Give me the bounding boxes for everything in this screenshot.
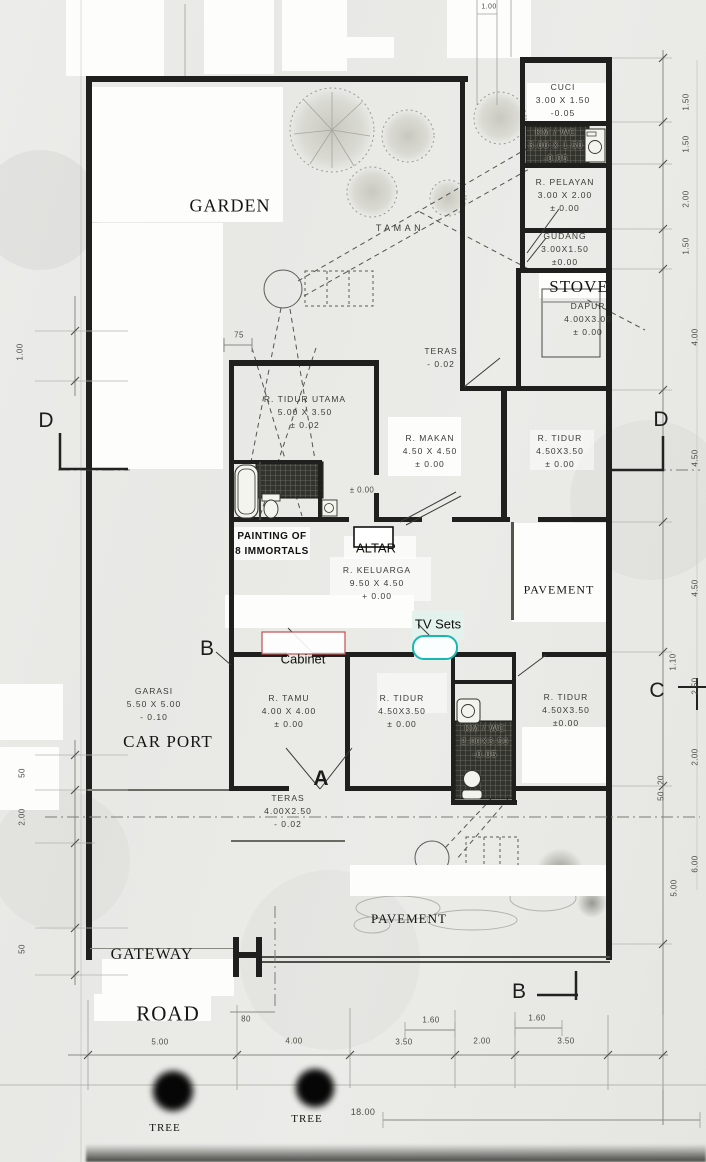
dim-1-50-r2: 1.50	[682, 135, 691, 152]
dim-1-60-b: 1.60	[528, 1014, 545, 1023]
room-label-teras-top: TERAS - 0.02	[424, 345, 457, 371]
tree-icon	[293, 1066, 337, 1110]
room-label-cuci: CUCI 3.00 X 1.50 -0.05	[536, 81, 590, 121]
washing-machine-icon	[585, 129, 605, 162]
tree-icon	[150, 1068, 196, 1114]
label-car-port: CAR PORT	[123, 732, 213, 752]
label-painting: PAINTING OF 8 IMMORTALS	[235, 529, 309, 559]
toilet-icon	[464, 771, 481, 788]
room-label-tidur-utama: R. TIDUR UTAMA 5.00 X 3.50 ± 0.02	[264, 393, 346, 433]
room-label-tidur-se: R. TIDUR 4.50X3.50 ±0.00	[542, 691, 590, 731]
room-label-makan: R. MAKAN 4.50 X 4.50 ± 0.00	[403, 432, 457, 472]
room-label-garasi: GARASI 5.50 X 5.00 - 0.10	[127, 685, 181, 725]
label-tv-sets: TV Sets	[415, 617, 461, 632]
label-cabinet: Cabinet	[281, 652, 326, 667]
dim-1-00-l: 1.00	[16, 343, 25, 360]
room-label-teras-bottom: TERAS 4.00X2.50 - 0.02	[264, 792, 312, 832]
dim-3-50-b: 3.50	[557, 1037, 574, 1046]
room-label-tidur-mid: R. TIDUR 4.50X3.50 ± 0.00	[378, 692, 426, 732]
dim-1-60-a: 1.60	[422, 1016, 439, 1025]
label-garden: GARDEN	[190, 196, 271, 217]
dim-4-50-r1: 4.50	[691, 449, 700, 466]
marker-d-right: D	[653, 408, 668, 432]
garden-sketch-top	[264, 88, 526, 308]
marker-d-left: D	[38, 409, 53, 433]
dim-6-00-r: 6.00	[691, 855, 700, 872]
scan-smudge	[86, 1144, 706, 1162]
dim-2-00-r1: 2.00	[682, 190, 691, 207]
marker-b-bottom: B	[512, 980, 526, 1004]
label-pavement-bottom: PAVEMENT	[371, 911, 447, 927]
dim-4-00-bottom: 4.00	[285, 1037, 302, 1046]
room-label-dapur: DAPUR 4.00X3.00 ± 0.00	[564, 300, 612, 340]
dim-50-l1: 50	[18, 768, 27, 778]
dim-1-50-r1: 1.50	[682, 93, 691, 110]
dim-75: 75	[234, 331, 244, 340]
dim-2-50-r: 2.50	[691, 677, 700, 694]
room-label-tamu: R. TAMU 4.00 X 4.00 ± 0.00	[262, 692, 316, 732]
label-gateway: GATEWAY	[111, 946, 194, 964]
dim-5-00-r: 5.00	[670, 879, 679, 896]
dim-2-00-bottom: 2.00	[473, 1037, 490, 1046]
label-road: ROAD	[136, 1002, 200, 1027]
label-stove: STOVE	[549, 277, 608, 297]
dim-2-00-r2: 2.00	[691, 748, 700, 765]
room-label-gudang: GUDANG 3.00X1.50 ±0.00	[541, 230, 589, 270]
dim-20-r: 20	[657, 775, 666, 785]
marker-b-left: B	[200, 637, 214, 661]
marker-c-right: C	[649, 679, 664, 703]
dim-4-00-r: 4.00	[691, 328, 700, 345]
dim-2-00-l: 2.00	[18, 808, 27, 825]
dim-4-50-r2: 4.50	[691, 579, 700, 596]
dim-1-50-r3: 1.50	[682, 237, 691, 254]
scan-crease	[80, 0, 82, 1162]
marker-a: A	[313, 767, 328, 791]
room-label-kmwc-top: KM / WC 3.00 X 1.50 -0.05	[529, 126, 583, 166]
dim-50-l2: 50	[18, 944, 27, 954]
dim-1-00-top: 1.00	[481, 4, 496, 11]
dim-50-r1: 50	[657, 791, 666, 801]
label-taman: TAMAN	[376, 222, 424, 236]
dim-1-10-r: 1.10	[669, 653, 678, 670]
room-label-kmwc-bottom: KM / WC 2.00X3.50 -0.05	[461, 722, 509, 762]
tv-sets-box	[413, 636, 457, 659]
label-level-altar: ± 0.00	[350, 486, 375, 495]
room-label-keluarga: R. KELUARGA 9.50 X 4.50 + 0.00	[343, 564, 411, 604]
dim-80: 80	[241, 1015, 251, 1024]
label-pavement-right: PAVEMENT	[524, 583, 595, 598]
plan-canvas: CUCI 3.00 X 1.50 -0.05KM / WC 3.00 X 1.5…	[0, 0, 706, 1162]
dim-3-50-a: 3.50	[395, 1038, 412, 1047]
label-tree-2: TREE	[291, 1113, 323, 1125]
label-altar: ALTAR	[356, 541, 396, 556]
room-label-tidur-ne: R. TIDUR 4.50X3.50 ± 0.00	[536, 432, 584, 472]
dim-18-00: 18.00	[351, 1107, 376, 1117]
dim-5-00-bottom: 5.00	[151, 1038, 168, 1047]
label-tree-1: TREE	[149, 1122, 181, 1134]
room-label-pelayan: R. PELAYAN 3.00 X 2.00 ± 0.00	[536, 176, 595, 216]
washbasin-icon	[457, 699, 480, 723]
